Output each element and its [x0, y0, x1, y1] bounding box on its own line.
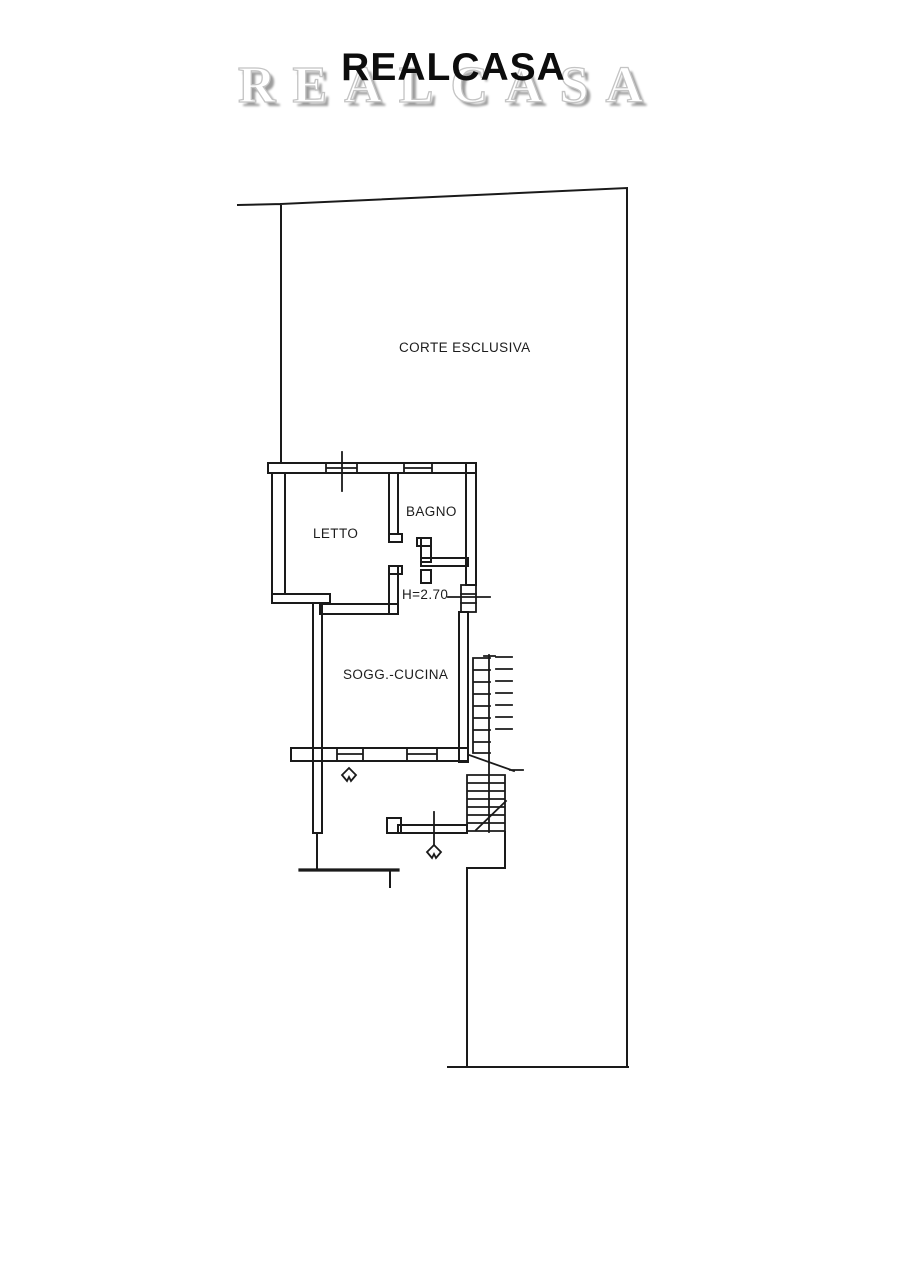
window-top-right: [404, 463, 432, 473]
stair-break-line: [469, 755, 523, 830]
courtyard-boundary: [238, 188, 628, 1067]
label-living-kitchen: SOGG.-CUCINA: [343, 667, 448, 682]
window-bottom-left: [337, 748, 363, 761]
window-top-left: [326, 452, 357, 491]
entrance-arrow-icon: [342, 768, 356, 781]
stair-lower-treads: [467, 775, 505, 832]
label-bathroom: BAGNO: [406, 504, 457, 519]
floorplan-drawing: [0, 0, 907, 1280]
stair-dashed-treads: [496, 657, 512, 729]
staircase: [467, 655, 523, 832]
stair-upper-treads: [473, 658, 490, 753]
window-bottom-right: [407, 748, 437, 761]
entrance-arrows: [342, 768, 441, 858]
label-courtyard: CORTE ESCLUSIVA: [399, 340, 531, 355]
entrance-arrow-icon: [427, 845, 441, 858]
lower-outline: [300, 832, 505, 1067]
label-bedroom: LETTO: [313, 526, 358, 541]
window-right-wall: [448, 585, 490, 612]
label-ceiling-height: H=2.70: [402, 587, 448, 602]
floorplan-page: REALCASA REALCASA: [0, 0, 907, 1280]
